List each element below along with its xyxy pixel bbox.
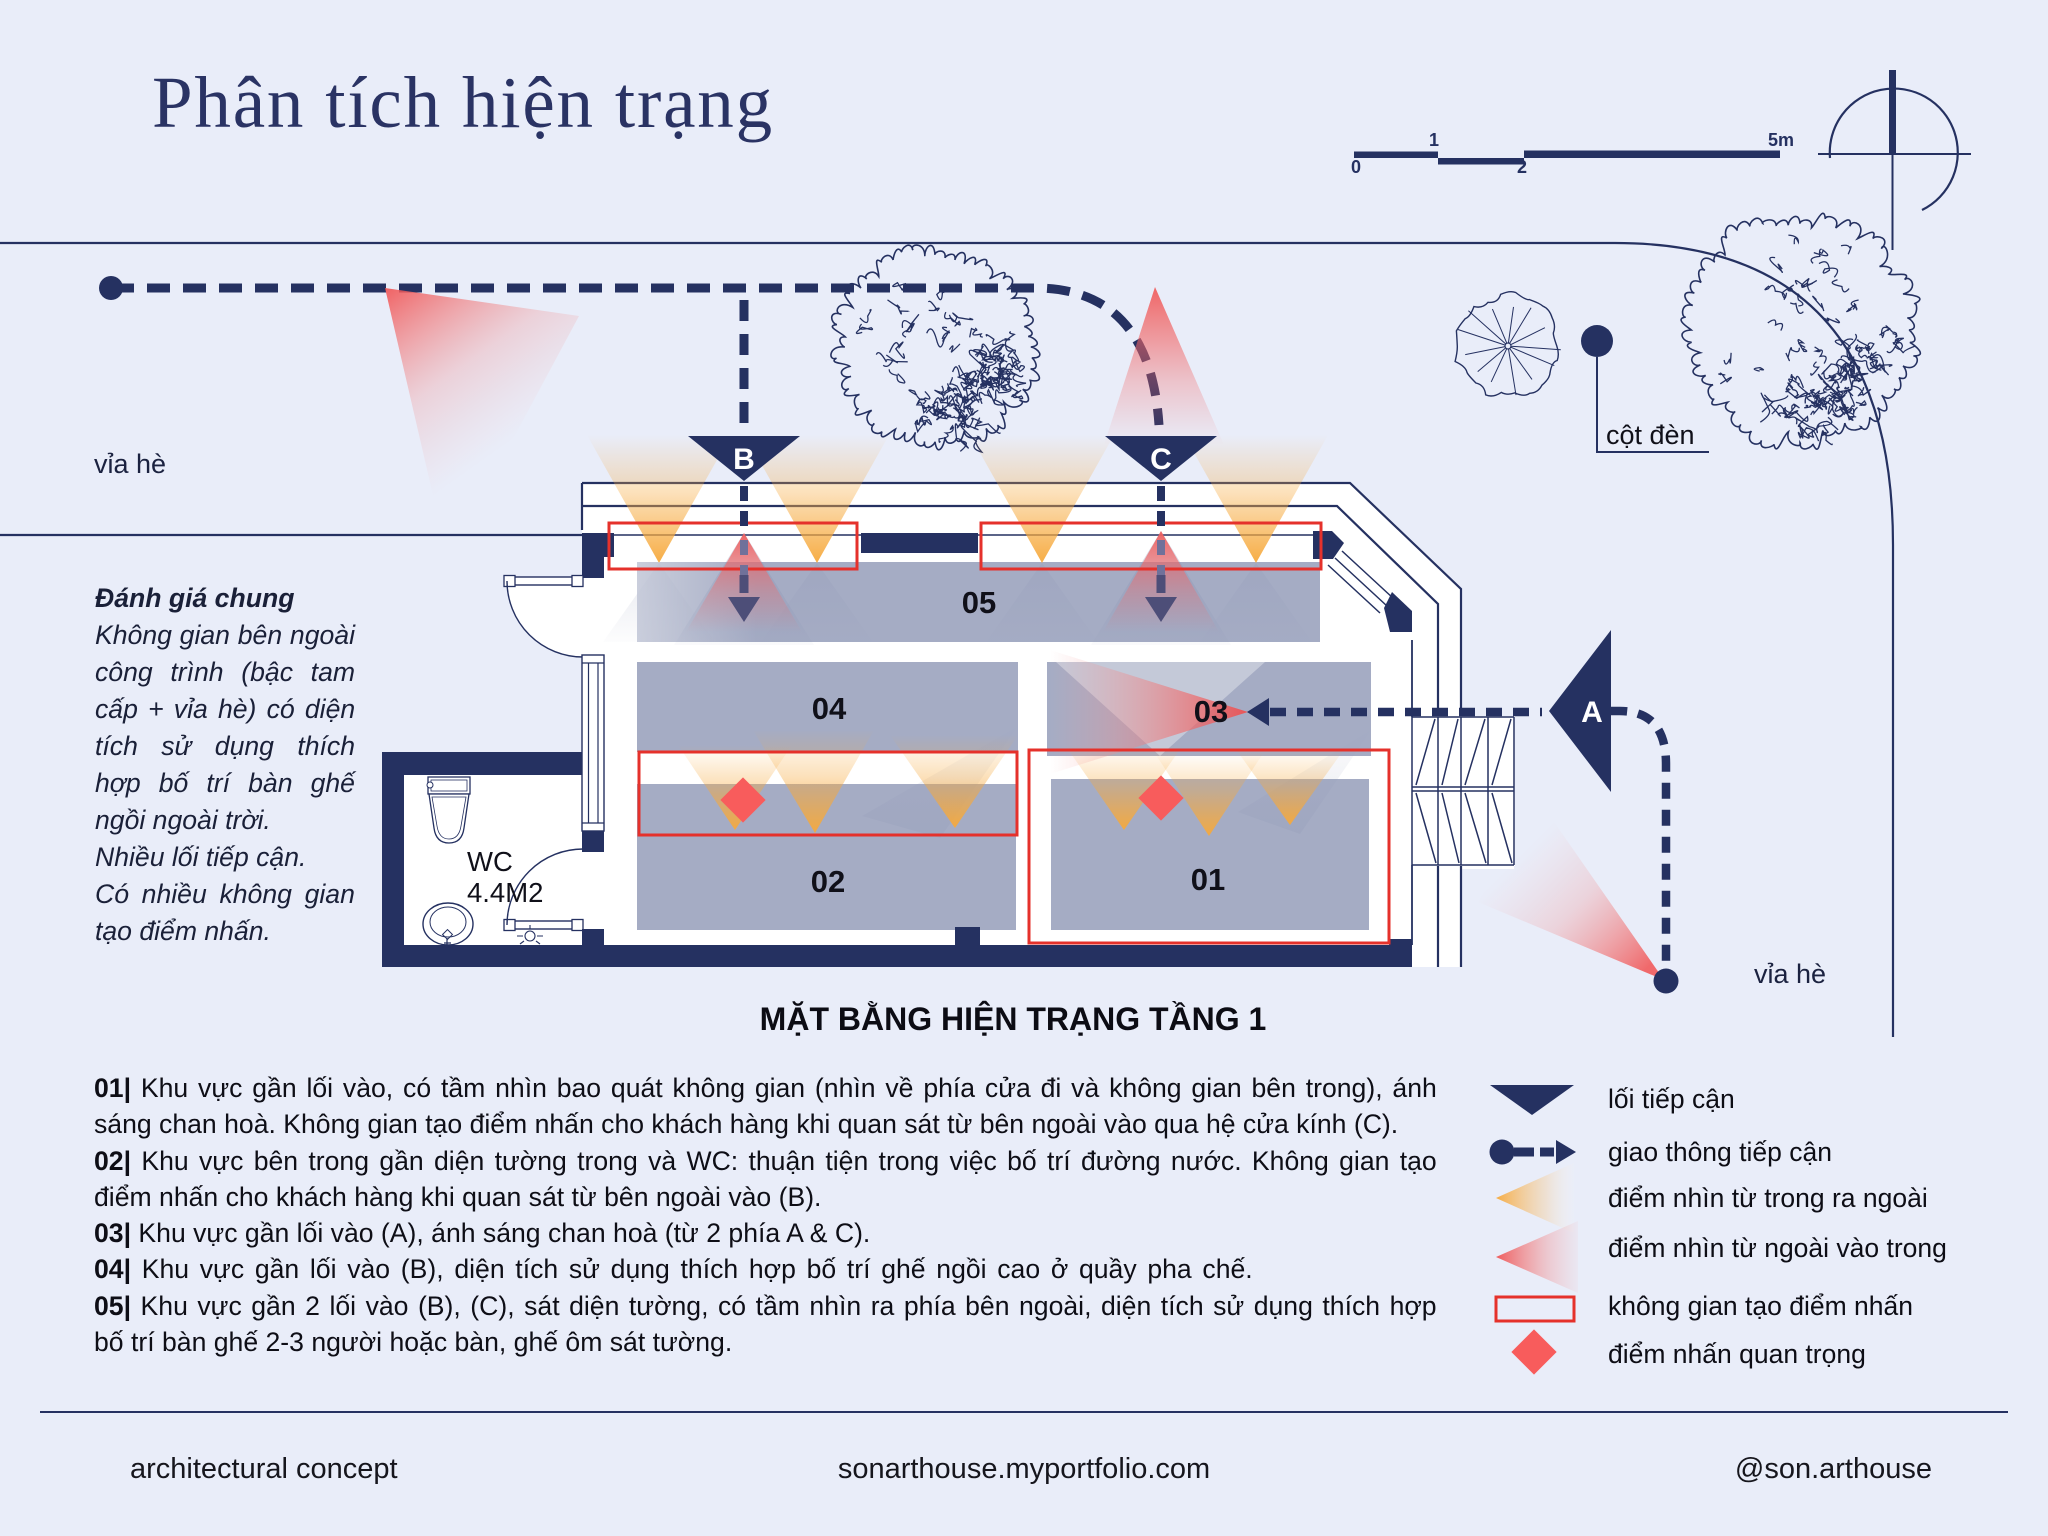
svg-text:2: 2 <box>1517 157 1527 177</box>
svg-text:04: 04 <box>812 691 847 726</box>
svg-text:02: 02 <box>811 864 845 899</box>
svg-text:03: 03 <box>1194 694 1228 729</box>
svg-text:05: 05 <box>962 585 996 620</box>
svg-text:C: C <box>1150 443 1172 476</box>
svg-text:1: 1 <box>1429 130 1439 150</box>
svg-text:5m: 5m <box>1768 130 1794 150</box>
svg-text:0: 0 <box>1351 157 1361 177</box>
svg-text:B: B <box>733 443 755 476</box>
svg-text:01: 01 <box>1191 862 1225 897</box>
svg-text:A: A <box>1581 696 1603 729</box>
